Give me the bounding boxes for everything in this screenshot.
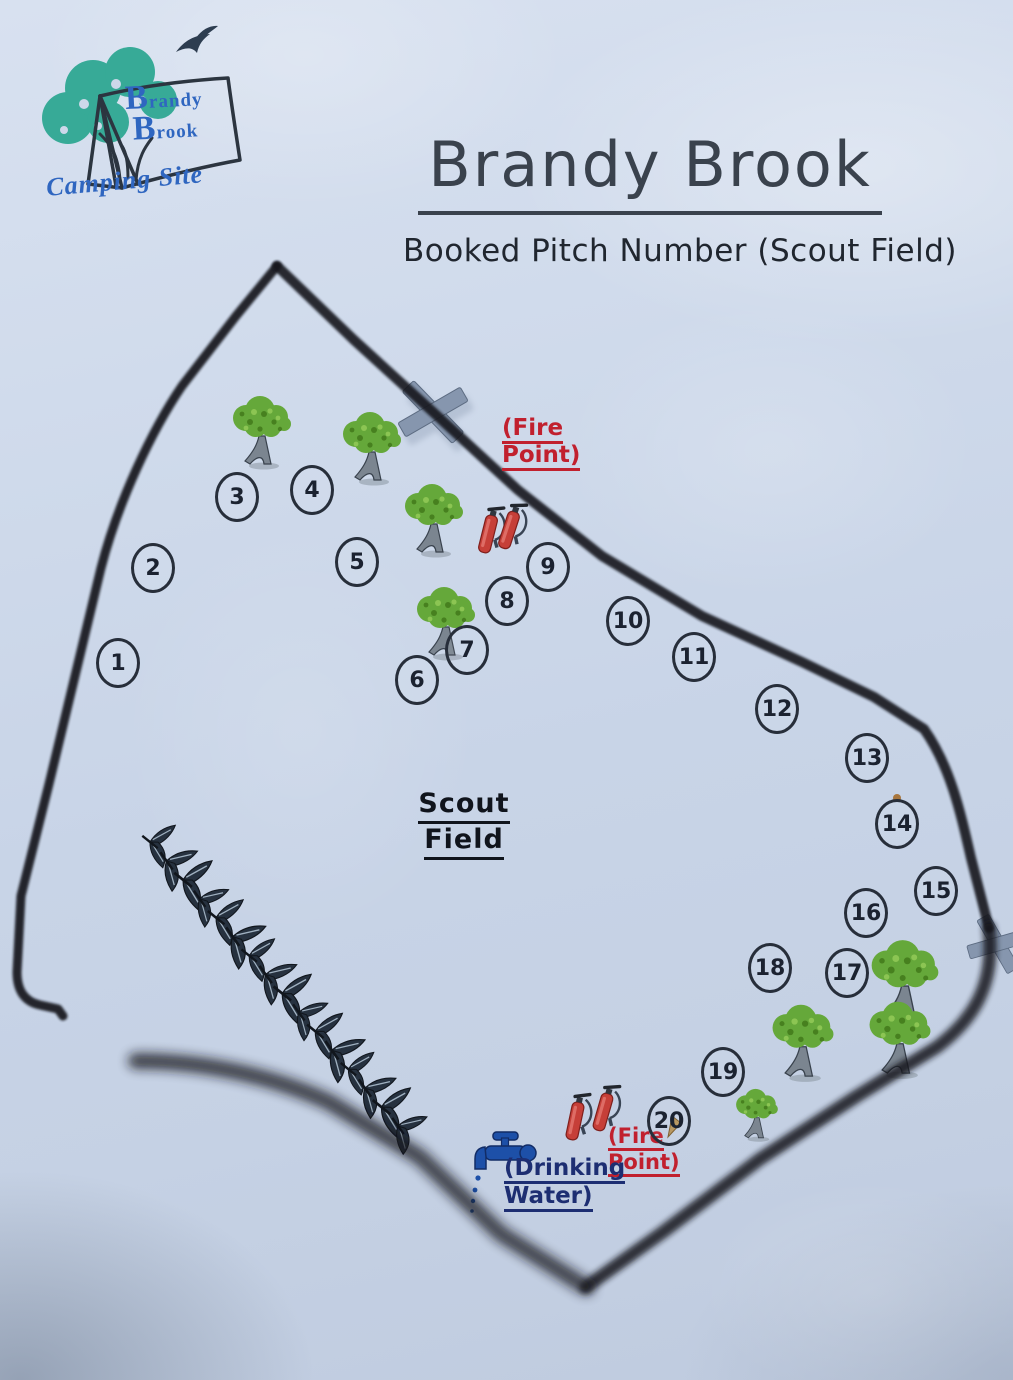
pitch-circle-8: 8 xyxy=(485,576,529,626)
hedge-leaf-icon xyxy=(273,974,317,1025)
pitch-circle-17: 17 xyxy=(825,948,869,998)
tree-layer xyxy=(233,396,938,1142)
pitch-circle-2: 2 xyxy=(131,543,175,593)
tree-icon xyxy=(405,484,463,558)
logo-word-2: Brook xyxy=(132,113,205,148)
logo-wordmark: Brandy Brook xyxy=(124,82,204,148)
pitch-circle-14: 14 xyxy=(875,799,919,849)
pitch-circle-5: 5 xyxy=(335,537,379,587)
fire-extinguisher-icon xyxy=(565,1091,595,1142)
pitch-circle-4: 4 xyxy=(290,465,334,515)
pitch-circle-12: 12 xyxy=(755,684,799,734)
fire-point-label-top: (Fire Point) xyxy=(502,417,580,471)
hedge-row xyxy=(142,825,427,1157)
hedge-leaf-icon xyxy=(173,861,217,912)
page-subtitle: Booked Pitch Number (Scout Field) xyxy=(380,233,980,269)
tree-icon xyxy=(736,1089,778,1142)
tree-icon xyxy=(773,1005,834,1082)
tree-icon xyxy=(233,396,291,470)
pitch-circle-18: 18 xyxy=(748,943,792,993)
pitch-circle-15: 15 xyxy=(914,866,958,916)
drinking-water-label: (Drinking Water) xyxy=(504,1156,625,1212)
fire-point-top-extinguishers xyxy=(478,501,532,556)
campsite-map-page: Brandy Brook Camping Site Brandy Brook B… xyxy=(0,0,1013,1380)
pitch-circle-11: 11 xyxy=(672,632,716,682)
pitch-circle-16: 16 xyxy=(844,888,888,938)
pitch-circle-1: 1 xyxy=(96,638,140,688)
pitch-circle-20: 20 xyxy=(647,1096,691,1146)
pitch-circle-10: 10 xyxy=(606,596,650,646)
page-title: Brandy Brook xyxy=(350,128,950,215)
pitch-circle-7: 7 xyxy=(445,625,489,675)
tree-icon xyxy=(343,412,401,486)
pitch-circle-13: 13 xyxy=(845,733,889,783)
bird-icon xyxy=(176,26,218,53)
pitch-circle-19: 19 xyxy=(701,1047,745,1097)
pitch-circle-6: 6 xyxy=(395,655,439,705)
pitch-circle-3: 3 xyxy=(215,472,259,522)
scout-field-label: Scout Field xyxy=(404,788,524,860)
pitch-circle-9: 9 xyxy=(526,542,570,592)
